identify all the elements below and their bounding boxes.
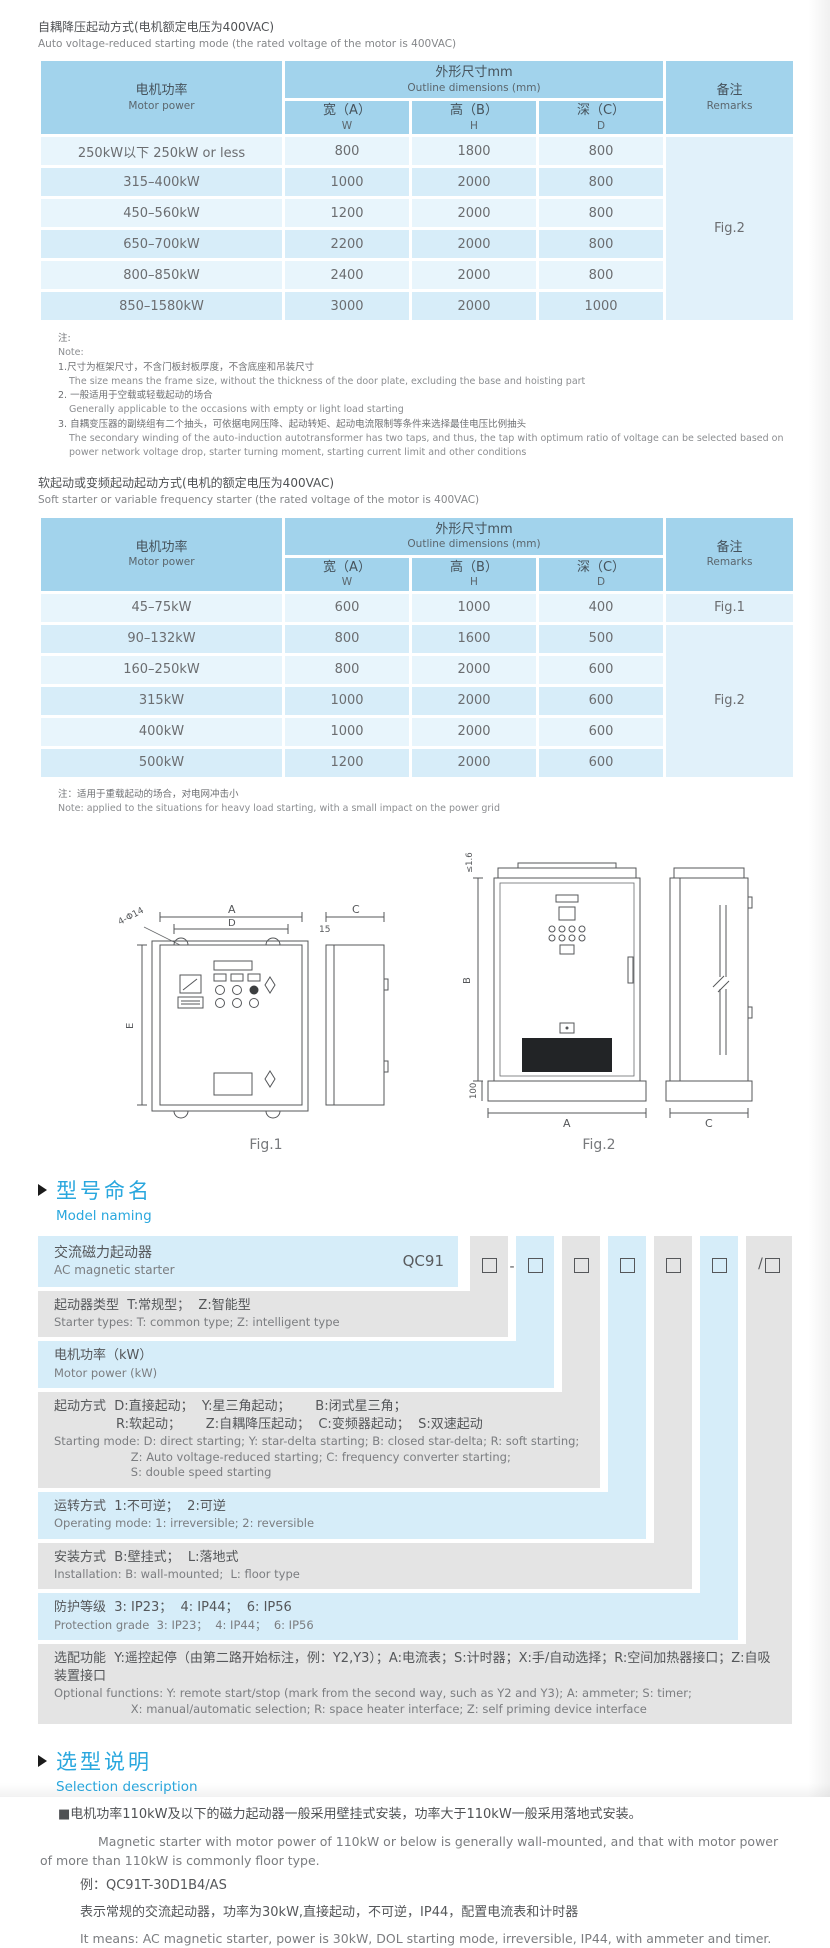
col-header-motor-power: 电机功率 Motor power [40,60,284,136]
remarks-label-zh: 备注 [666,539,793,557]
table2-title-zh: 软起动或变频起动起动方式(电机的额定电压为400VAC) [38,476,793,492]
table1-header: 电机功率 Motor power 外形尺寸mm Outline dimensio… [40,60,795,136]
width-cell: 1200 [284,198,411,229]
model-naming-table: / - 交流磁力起动器 AC magnetic starter QC91 起动器… [38,1236,793,1724]
depth-cell: 800 [538,260,665,291]
selection-title-en: Selection description [56,1779,793,1795]
depth-cell: 800 [538,229,665,260]
power-cell: 90–132kW [40,623,284,654]
width-cell: 800 [284,623,411,654]
naming-row-zh: 安装方式 B:壁挂式； L:落地式 [54,1549,682,1567]
depth-label-zh: 深（C） [539,559,663,577]
svg-text:E: E [125,1023,136,1029]
svg-text:A: A [563,1117,571,1130]
note-item-zh: 3. 自耦变压器的副绕组有二个抽头，可依据电网压降、起动转矩、起动电流限制等条件… [58,418,793,432]
table-row: 45–75kW 600 1000 400 Fig.1 [40,592,795,623]
naming-row-starter-type: 起动器类型 T:常规型； Z:智能型 Starter types: T: com… [38,1291,508,1338]
depth-cell: 500 [538,623,665,654]
selection-paragraph-en: Magnetic starter with motor power of 110… [40,1832,788,1871]
naming-row-en: Starting mode: D: direct starting; Y: st… [54,1434,590,1481]
model-naming-heading: 型号命名 [38,1175,793,1205]
width-cell: 1000 [284,167,411,198]
depth-label-en: D [539,120,663,134]
depth-cell: 600 [538,747,665,778]
naming-row-motor-power: 电机功率（kW） Motor power (kW) [38,1341,554,1388]
code-stripe-protection-grade [700,1236,738,1640]
col-header-height: 高（B） H [411,556,538,592]
depth-cell: 600 [538,654,665,685]
height-cell: 2000 [411,198,538,229]
naming-row-zh: 防护等级 3: IP23； 4: IP44； 6: IP56 [54,1599,728,1617]
table1-title-zh: 自耦降压起动方式(电机额定电压为400VAC) [38,20,793,36]
power-cell: 315–400kW [40,167,284,198]
dimensions-table-auto-voltage: 电机功率 Motor power 外形尺寸mm Outline dimensio… [38,58,796,323]
height-cell: 2000 [411,716,538,747]
outline-label-zh: 外形尺寸mm [285,64,663,82]
model-code-box [574,1258,589,1273]
width-cell: 2400 [284,260,411,291]
naming-row-en: Motor power (kW) [54,1366,544,1382]
svg-text:100: 100 [469,1083,479,1099]
depth-cell: 800 [538,136,665,167]
note-item-zh: 2. 一般适用于空载或轻载起动的场合 [58,389,793,403]
motor-power-label-en: Motor power [41,556,282,570]
section-soft-starter: 软起动或变频起动起动方式(电机的额定电压为400VAC) Soft starte… [38,476,793,817]
slash-separator: / [758,1258,763,1271]
fig2-drawing: ≤1.6 [434,839,764,1135]
power-cell: 450–560kW [40,198,284,229]
width-label-zh: 宽（A） [285,559,409,577]
naming-row-en: Operating mode: 1: irreversible; 2: reve… [54,1516,636,1532]
table2-title-en: Soft starter or variable frequency start… [38,494,793,508]
power-cell: 315kW [40,685,284,716]
fig2-caption: Fig.2 [582,1137,615,1153]
height-cell: 2000 [411,747,538,778]
table-row: 90–132kW 800 1600 500 Fig.2 [40,623,795,654]
power-cell: 500kW [40,747,284,778]
height-cell: 2000 [411,260,538,291]
naming-row-en: Protection grade 3: IP23； 4: IP44； 6: IP… [54,1618,728,1634]
triangle-bullet-icon [38,1184,47,1196]
selection-example-desc-en: It means: AC magnetic starter, power is … [80,1929,793,1948]
height-cell: 1000 [411,592,538,623]
note-table2: 注：适用于重载起动的场合，对电网冲击小 Note: applied to the… [58,788,793,817]
naming-row-zh: 选配功能 Y:遥控起停（由第二路开始标注，例：Y2,Y3）；A:电流表；S:计时… [54,1650,782,1686]
model-code-prefix: QC91 [403,1252,444,1270]
remarks-label-zh: 备注 [666,82,793,100]
outline-label-en: Outline dimensions (mm) [285,538,663,552]
col-header-width: 宽（A） W [284,100,411,136]
model-naming-title-en: Model naming [56,1208,793,1224]
col-header-motor-power: 电机功率 Motor power [40,516,284,592]
motor-power-label-zh: 电机功率 [41,82,282,100]
table2-header: 电机功率 Motor power 外形尺寸mm Outline dimensio… [40,516,795,592]
fig1-caption: Fig.1 [249,1137,282,1153]
fig1-drawing: A D 4-Φ14 E [116,883,416,1135]
remarks-cell: Fig.2 [665,136,795,322]
model-code-box [712,1258,727,1273]
height-label-en: H [412,120,536,134]
depth-cell: 1000 [538,291,665,322]
power-cell: 650–700kW [40,229,284,260]
width-cell: 2200 [284,229,411,260]
height-cell: 2000 [411,167,538,198]
page: 自耦降压起动方式(电机额定电压为400VAC) Auto voltage-red… [0,0,830,1948]
width-cell: 1000 [284,685,411,716]
note2-zh: 注：适用于重载起动的场合，对电网冲击小 [58,788,793,803]
selection-example-desc-zh: 表示常规的交流起动器，功率为30kW,直接起动，不可逆，IP44，配置电流表和计… [80,1903,793,1923]
product-name-en: AC magnetic starter [54,1263,175,1279]
note-item-zh: 1.尺寸为框架尺寸，不含门板封板厚度，不含底座和吊装尺寸 [58,361,793,375]
note-item-en: Generally applicable to the occasions wi… [69,403,793,417]
svg-text:B: B [462,977,473,984]
width-cell: 800 [284,654,411,685]
naming-row-en: Installation: B: wall-mounted; L: floor … [54,1567,682,1583]
width-cell: 1200 [284,747,411,778]
svg-text:C: C [705,1117,713,1130]
height-cell: 1600 [411,623,538,654]
power-cell: 400kW [40,716,284,747]
power-cell: 800–850kW [40,260,284,291]
note-item-en: The secondary winding of the auto-induct… [69,432,804,461]
svg-text:4-Φ14: 4-Φ14 [117,906,146,928]
naming-row-protection-grade: 防护等级 3: IP23； 4: IP44； 6: IP56 Protectio… [38,1593,738,1640]
model-code-box [482,1258,497,1273]
outline-label-en: Outline dimensions (mm) [285,82,663,96]
naming-row-starting-mode: 起动方式 D:直接起动； Y:星三角起动； B:闭式星三角； R:软起动； Z:… [38,1392,600,1488]
col-header-remarks: 备注 Remarks [665,516,795,592]
depth-cell: 600 [538,716,665,747]
motor-power-label-en: Motor power [41,100,282,114]
width-cell: 800 [284,136,411,167]
figures-row: A D 4-Φ14 E [116,839,793,1153]
width-cell: 3000 [284,291,411,322]
figure-2: ≤1.6 [434,839,764,1153]
naming-row-en: Starter types: T: common type; Z: intell… [54,1315,498,1331]
note-label-zh: 注: [58,332,793,346]
note-label-en: Note: [58,346,793,360]
width-cell: 600 [284,592,411,623]
selection-title-zh: 选型说明 [56,1746,152,1776]
note-item-en: The size means the frame size, without t… [69,375,793,389]
naming-product-row: 交流磁力起动器 AC magnetic starter QC91 [38,1236,458,1286]
height-label-zh: 高（B） [412,559,536,577]
naming-row-zh: 起动器类型 T:常规型； Z:智能型 [54,1297,498,1315]
naming-row-operating-mode: 运转方式 1:不可逆； 2:可逆 Operating mode: 1: irre… [38,1492,646,1539]
col-header-depth: 深（C） D [538,556,665,592]
height-cell: 2000 [411,229,538,260]
remarks-cell: Fig.1 [665,592,795,623]
model-code-box [620,1258,635,1273]
width-label-zh: 宽（A） [285,102,409,120]
model-code-box [765,1258,780,1273]
svg-text:A: A [228,903,236,916]
naming-row-zh: 运转方式 1:不可逆； 2:可逆 [54,1498,636,1516]
dash-separator: - [508,1236,516,1286]
selection-paragraph-zh: ■电机功率110kW及以下的磁力起动器一般采用壁挂式安装，功率大于110kW一般… [58,1805,793,1825]
dimensions-table-soft-starter: 电机功率 Motor power 外形尺寸mm Outline dimensio… [38,515,796,780]
height-cell: 2000 [411,685,538,716]
depth-label-zh: 深（C） [539,102,663,120]
model-naming-title-zh: 型号命名 [56,1175,152,1205]
height-label-en: H [412,576,536,590]
height-cell: 1800 [411,136,538,167]
remarks-cell: Fig.2 [665,623,795,778]
power-cell: 250kW以下 250kW or less [40,136,284,167]
figure-1: A D 4-Φ14 E [116,883,416,1153]
power-cell: 850–1580kW [40,291,284,322]
product-name: 交流磁力起动器 AC magnetic starter [54,1244,175,1278]
width-label-en: W [285,576,409,590]
selection-heading: 选型说明 [38,1746,793,1776]
section-auto-voltage: 自耦降压起动方式(电机额定电压为400VAC) Auto voltage-red… [38,20,793,460]
triangle-bullet-icon [38,1755,47,1767]
note2-en: Note: applied to the situations for heav… [58,802,793,817]
height-cell: 2000 [411,654,538,685]
svg-text:C: C [352,903,360,916]
selection-example: 例：QC91T-30D1B4/AS [80,1876,793,1896]
svg-text:15: 15 [319,925,330,935]
naming-row-zh: 电机功率（kW） [54,1347,544,1365]
col-header-outline-dimensions: 外形尺寸mm Outline dimensions (mm) [284,60,665,100]
col-header-width: 宽（A） W [284,556,411,592]
col-header-remarks: 备注 Remarks [665,60,795,136]
remarks-label-en: Remarks [666,100,793,114]
power-cell: 160–250kW [40,654,284,685]
height-cell: 2000 [411,291,538,322]
remarks-label-en: Remarks [666,556,793,570]
table1-title-en: Auto voltage-reduced starting mode (the … [38,38,793,52]
depth-cell: 800 [538,198,665,229]
col-header-height: 高（B） H [411,100,538,136]
naming-row-installation: 安装方式 B:壁挂式； L:落地式 Installation: B: wall-… [38,1543,692,1590]
product-name-zh: 交流磁力起动器 [54,1244,175,1263]
width-cell: 1000 [284,716,411,747]
model-code-box [528,1258,543,1273]
col-header-depth: 深（C） D [538,100,665,136]
svg-text:D: D [228,918,236,929]
naming-row-en: Optional functions: Y: remote start/stop… [54,1686,782,1717]
depth-label-en: D [539,576,663,590]
width-label-en: W [285,120,409,134]
depth-cell: 400 [538,592,665,623]
notes-table1: 注: Note: 1.尺寸为框架尺寸，不含门板封板厚度，不含底座和吊装尺寸 Th… [58,332,793,460]
model-code-box [666,1258,681,1273]
code-stripe-installation [654,1236,692,1589]
table-row: 250kW以下 250kW or less 800 1800 800 Fig.2 [40,136,795,167]
naming-row-optional-functions: 选配功能 Y:遥控起停（由第二路开始标注，例：Y2,Y3）；A:电流表；S:计时… [38,1644,792,1724]
depth-cell: 600 [538,685,665,716]
col-header-outline-dimensions: 外形尺寸mm Outline dimensions (mm) [284,516,665,556]
height-label-zh: 高（B） [412,102,536,120]
power-cell: 45–75kW [40,592,284,623]
motor-power-label-zh: 电机功率 [41,539,282,557]
outline-label-zh: 外形尺寸mm [285,521,663,539]
selection-body: ■电机功率110kW及以下的磁力起动器一般采用壁挂式安装，功率大于110kW一般… [40,1805,793,1948]
svg-text:≤1.6: ≤1.6 [465,853,475,874]
depth-cell: 800 [538,167,665,198]
naming-row-zh: 起动方式 D:直接起动； Y:星三角起动； B:闭式星三角； R:软起动； Z:… [54,1398,590,1434]
